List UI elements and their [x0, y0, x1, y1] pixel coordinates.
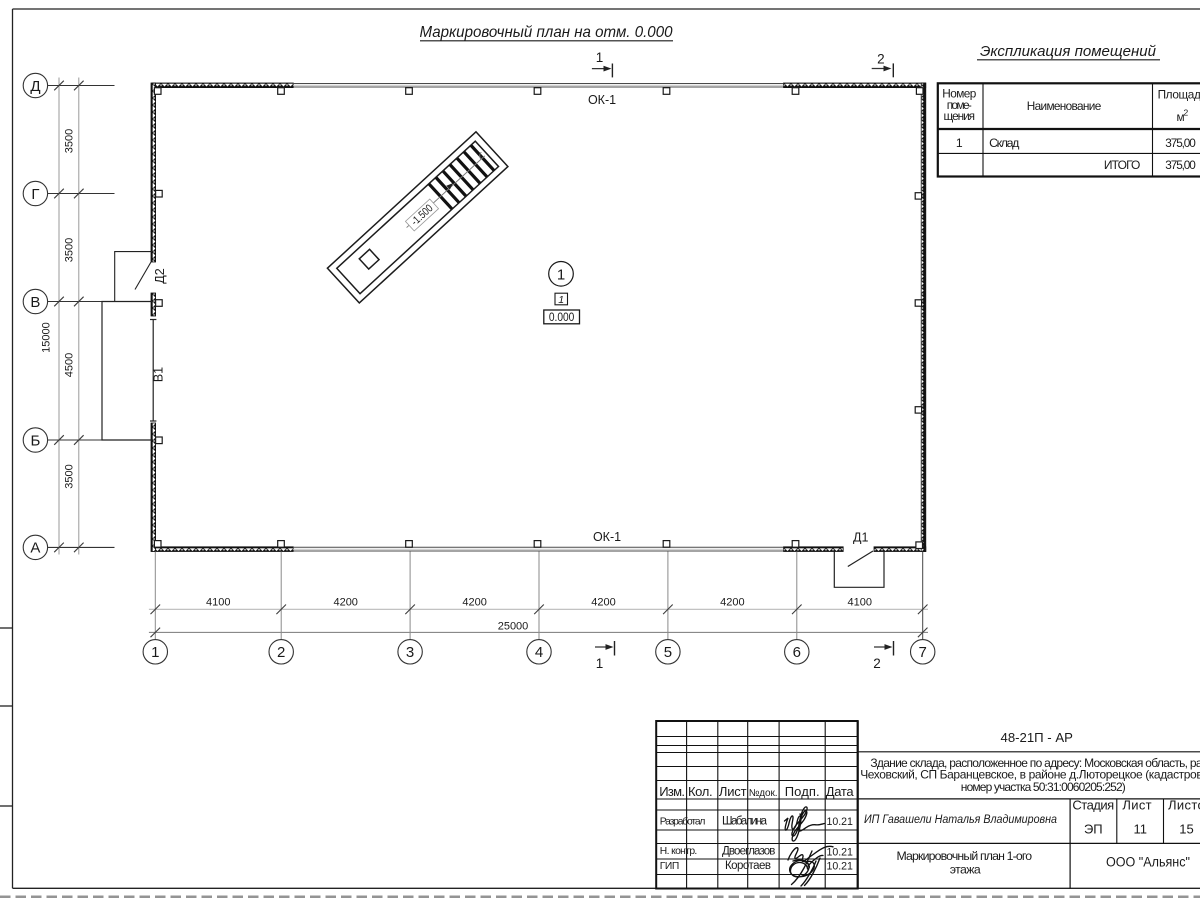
svg-text:Д: Д — [30, 78, 40, 95]
svg-text:Д1: Д1 — [853, 530, 868, 544]
svg-text:15: 15 — [1179, 822, 1193, 837]
svg-text:Экспликация помещений: Экспликация помещений — [980, 43, 1157, 60]
svg-text:1: 1 — [596, 656, 604, 671]
svg-text:Склад: Склад — [989, 136, 1020, 150]
svg-text:6: 6 — [793, 644, 801, 661]
svg-text:11: 11 — [1133, 822, 1147, 837]
svg-text:ОК-1: ОК-1 — [593, 530, 621, 544]
svg-text:3500: 3500 — [64, 464, 76, 488]
svg-text:щения: щения — [944, 109, 976, 123]
svg-text:В1: В1 — [152, 367, 166, 382]
svg-text:Изм.: Изм. — [659, 784, 685, 799]
svg-text:4100: 4100 — [848, 597, 872, 609]
svg-text:0.000: 0.000 — [549, 312, 575, 324]
svg-text:ГИП: ГИП — [660, 861, 680, 872]
svg-text:ИП Гавашели Наталья Владимиров: ИП Гавашели Наталья Владимировна — [864, 812, 1057, 826]
svg-text:4200: 4200 — [720, 597, 744, 609]
svg-text:Маркировочный план на отм. 0.0: Маркировочный план на отм. 0.000 — [420, 24, 673, 41]
svg-text:Двоеглазов: Двоеглазов — [722, 845, 775, 857]
svg-text:4200: 4200 — [591, 597, 615, 609]
svg-text:Шабалина: Шабалина — [722, 816, 768, 828]
svg-text:48-21П - АР: 48-21П - АР — [1001, 730, 1073, 745]
svg-text:10.21: 10.21 — [826, 861, 853, 873]
svg-text:5: 5 — [664, 644, 672, 661]
svg-text:375,00: 375,00 — [1165, 158, 1196, 172]
svg-text:1: 1 — [596, 50, 604, 65]
svg-text:Наименование: Наименование — [1027, 99, 1102, 113]
svg-text:№док.: №док. — [749, 788, 778, 799]
svg-text:Стадия: Стадия — [1072, 798, 1114, 813]
svg-text:А: А — [30, 540, 40, 557]
svg-text:ИТОГО: ИТОГО — [1104, 158, 1141, 172]
svg-text:1: 1 — [151, 644, 159, 661]
svg-text:В: В — [30, 294, 40, 311]
svg-text:номер участка 50:31:0060205:25: номер участка 50:31:0060205:252) — [961, 780, 1126, 794]
svg-text:Коротаев: Коротаев — [725, 860, 771, 872]
svg-text:ОК-1: ОК-1 — [588, 93, 616, 107]
svg-text:4: 4 — [535, 644, 543, 661]
svg-text:Б: Б — [30, 432, 40, 449]
svg-text:10.21: 10.21 — [826, 846, 853, 858]
svg-text:1: 1 — [557, 266, 565, 283]
svg-text:Кол.: Кол. — [688, 784, 713, 799]
svg-text:Подп.: Подп. — [785, 784, 820, 799]
svg-text:Площадь: Площадь — [1158, 88, 1200, 102]
svg-text:2: 2 — [277, 644, 285, 661]
svg-text:4100: 4100 — [206, 597, 230, 609]
svg-text:4200: 4200 — [462, 597, 486, 609]
svg-text:Г: Г — [31, 186, 39, 203]
svg-text:10.21: 10.21 — [826, 816, 853, 828]
svg-text:2: 2 — [877, 52, 885, 67]
svg-text:Н. контр.: Н. контр. — [660, 846, 698, 857]
svg-text:4200: 4200 — [333, 597, 357, 609]
svg-text:ООО "Альянс": ООО "Альянс" — [1106, 855, 1190, 870]
svg-text:3500: 3500 — [64, 238, 76, 262]
svg-text:3500: 3500 — [64, 129, 76, 153]
svg-text:2: 2 — [1184, 108, 1189, 118]
svg-text:4500: 4500 — [64, 353, 76, 377]
svg-text:Дата: Дата — [826, 784, 855, 799]
svg-text:этажа: этажа — [950, 862, 981, 876]
svg-text:1: 1 — [558, 294, 564, 306]
svg-text:Лист: Лист — [1122, 798, 1151, 813]
svg-text:25000: 25000 — [498, 621, 529, 633]
svg-text:Листов: Листов — [1168, 798, 1200, 813]
svg-text:Д2: Д2 — [153, 268, 167, 283]
svg-text:375,00: 375,00 — [1165, 136, 1196, 150]
svg-text:Лист: Лист — [719, 784, 747, 799]
svg-text:7: 7 — [919, 644, 927, 661]
svg-text:15000: 15000 — [40, 322, 52, 353]
svg-text:2: 2 — [873, 656, 881, 671]
svg-text:3: 3 — [406, 644, 414, 661]
svg-text:Разработал: Разработал — [660, 816, 706, 828]
svg-text:ЭП: ЭП — [1084, 822, 1103, 837]
svg-text:1: 1 — [956, 136, 963, 150]
svg-text:Маркировочный план 1-ого: Маркировочный план 1-ого — [897, 849, 1033, 863]
